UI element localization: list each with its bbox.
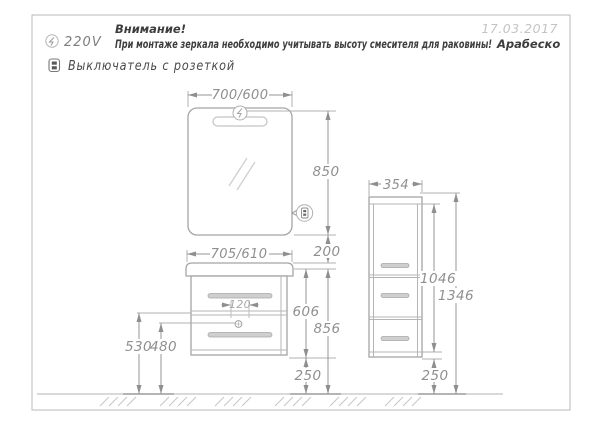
- cabinet-handle-top: [381, 264, 409, 268]
- mirror-lightning-icon: [233, 106, 247, 120]
- dim-vanity-height: 606: [293, 304, 320, 320]
- dim-cabinet-body-height: 1046: [420, 271, 456, 287]
- power-220v-icon: [46, 35, 58, 47]
- legend-power: 220V: [46, 35, 102, 50]
- dim-mirror-height: 850: [313, 164, 340, 180]
- drawing-canvas: 220V Внимание! При монтаже зеркала необх…: [0, 0, 600, 424]
- dim-vanity-width: 705/610: [211, 247, 268, 262]
- voltage-label: 220V: [64, 35, 102, 50]
- dim-cabinet-total-height: 1346: [438, 288, 474, 304]
- siphon: [235, 321, 242, 328]
- floor: [37, 394, 503, 406]
- drawer-handle-bottom: [208, 333, 272, 338]
- dim-drain-height: 530: [125, 339, 152, 355]
- model-name: Арабеско: [496, 37, 560, 51]
- drawing-date: 17.03.2017: [481, 21, 558, 36]
- cabinet-handle-bottom: [381, 337, 409, 341]
- dim-cabinet-floor-gap: 250: [422, 368, 449, 384]
- washbasin: [186, 263, 293, 276]
- dim-socket-height: 480: [150, 339, 177, 355]
- dim-siphon-offset: 120: [229, 298, 251, 311]
- dim-mirror-width: 700/600: [212, 88, 269, 103]
- mirror-switch-socket-callout: [292, 205, 313, 221]
- technical-drawing-page: 220V Внимание! При монтаже зеркала необх…: [0, 0, 600, 424]
- dim-mirror-vanity-gap: 200: [314, 244, 341, 260]
- floor-hatching: [100, 397, 421, 406]
- dim-cabinet-width: 354: [383, 178, 409, 193]
- warning-text: При монтаже зеркала необходимо учитывать…: [115, 37, 492, 51]
- attention-title: Внимание!: [115, 22, 186, 36]
- dim-vanity-floor-gap: 250: [295, 368, 322, 384]
- cabinet-handle-middle: [381, 294, 409, 298]
- switch-socket-icon: [49, 59, 60, 72]
- legend-switch: Выключатель с розеткой: [49, 59, 235, 74]
- tall-cabinet: [369, 197, 422, 357]
- dim-vanity-total-height: 856: [314, 321, 341, 337]
- switch-legend-label: Выключатель с розеткой: [68, 59, 235, 74]
